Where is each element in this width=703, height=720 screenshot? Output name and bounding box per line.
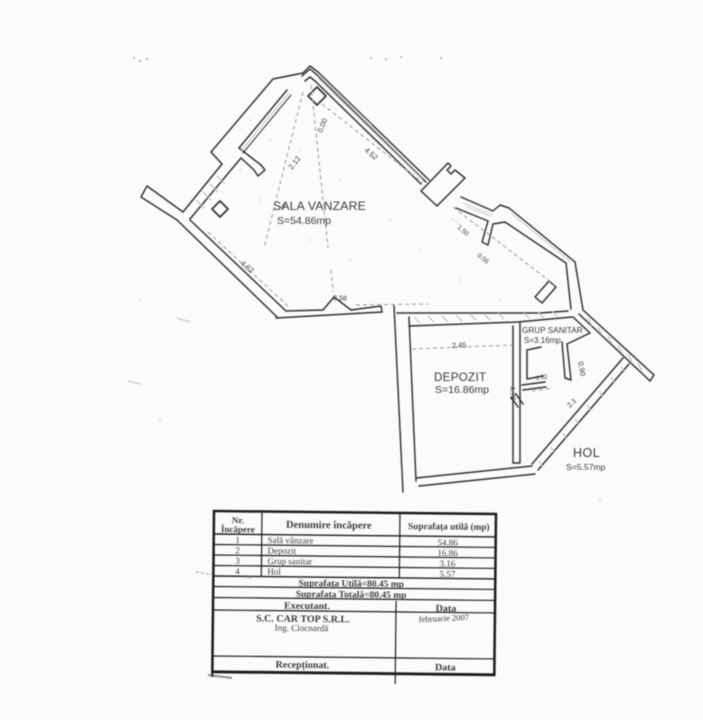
svg-text:Încăpere: Încăpere xyxy=(221,524,255,534)
svg-text:Suprafața Totală=80.45 mp: Suprafața Totală=80.45 mp xyxy=(296,590,407,601)
svg-text:16.86: 16.86 xyxy=(437,548,458,558)
svg-text:SALA VANZARE: SALA VANZARE xyxy=(273,199,366,213)
svg-text:4: 4 xyxy=(235,566,240,576)
svg-text:S=54.86mp: S=54.86mp xyxy=(277,215,331,227)
svg-text:S=3.16mp: S=3.16mp xyxy=(524,336,561,345)
svg-text:4.70: 4.70 xyxy=(508,386,518,401)
svg-text:Ing. Ciocnardă: Ing. Ciocnardă xyxy=(275,623,329,634)
svg-text:Sală vânzare: Sală vânzare xyxy=(268,535,314,545)
svg-text:3.16: 3.16 xyxy=(440,558,456,568)
svg-text:GRUP SANITAR: GRUP SANITAR xyxy=(522,326,583,335)
svg-text:Executant.: Executant. xyxy=(284,601,330,612)
svg-text:5.57: 5.57 xyxy=(439,569,455,579)
svg-text:Denumire încăpere: Denumire încăpere xyxy=(286,520,372,532)
svg-text:Suprafața Utilă=80.45 mp: Suprafața Utilă=80.45 mp xyxy=(298,579,404,590)
svg-text:2: 2 xyxy=(235,545,240,555)
svg-text:54.86: 54.86 xyxy=(438,537,459,547)
svg-text:Suprafața utilă (mp): Suprafața utilă (mp) xyxy=(408,521,490,533)
svg-text:S=16.86mp: S=16.86mp xyxy=(435,384,489,396)
svg-text:3: 3 xyxy=(235,556,240,566)
svg-text:S=5.57mp: S=5.57mp xyxy=(566,462,606,472)
svg-text:Grup sanitar: Grup sanitar xyxy=(267,556,312,566)
svg-text:Recepționat.: Recepționat. xyxy=(276,660,330,672)
svg-text:Data: Data xyxy=(435,662,456,673)
svg-text:HOL: HOL xyxy=(573,446,600,460)
svg-text:1: 1 xyxy=(235,535,240,545)
svg-text:februarie 2007: februarie 2007 xyxy=(419,612,470,624)
svg-text:DEPOZIT: DEPOZIT xyxy=(434,371,486,384)
svg-text:Depozit: Depozit xyxy=(268,546,297,556)
svg-text:2.45: 2.45 xyxy=(452,340,467,350)
svg-text:Hol: Hol xyxy=(267,567,281,577)
svg-text:3.58: 3.58 xyxy=(333,295,347,303)
